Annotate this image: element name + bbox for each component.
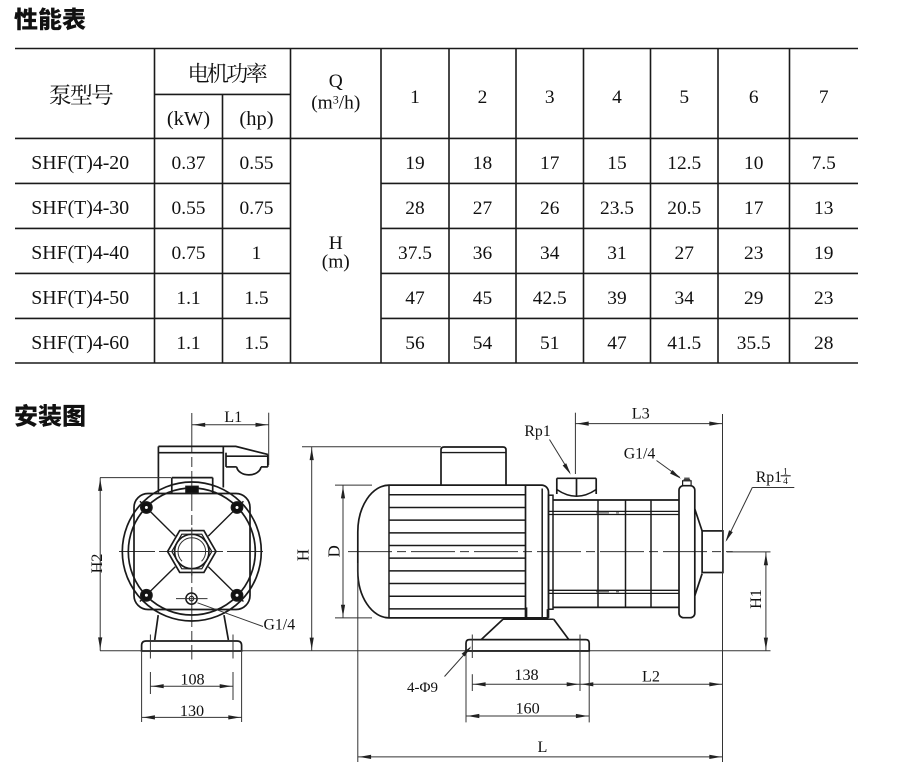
svg-text:SHF(T)4-40: SHF(T)4-40	[31, 242, 129, 264]
svg-text:1: 1	[252, 243, 262, 264]
svg-text:45: 45	[473, 288, 492, 309]
svg-text:35.5: 35.5	[737, 333, 771, 354]
svg-text:28: 28	[405, 198, 424, 219]
svg-text:19: 19	[814, 243, 833, 264]
svg-text:31: 31	[607, 243, 626, 264]
svg-text:138: 138	[514, 666, 538, 684]
svg-text:6: 6	[749, 87, 759, 108]
svg-text:108: 108	[180, 670, 204, 688]
svg-text:20.5: 20.5	[667, 198, 701, 219]
svg-text:56: 56	[405, 333, 425, 354]
svg-text:L: L	[538, 738, 548, 756]
svg-text:H1: H1	[747, 589, 765, 609]
svg-text:54: 54	[473, 333, 493, 354]
svg-text:42.5: 42.5	[533, 288, 567, 309]
svg-text:18: 18	[473, 153, 492, 174]
svg-text:H: H	[294, 549, 313, 561]
svg-text:0.75: 0.75	[240, 198, 274, 219]
svg-text:L1: L1	[224, 408, 242, 426]
svg-text:27: 27	[473, 198, 493, 219]
svg-text:19: 19	[405, 153, 424, 174]
svg-text:51: 51	[540, 333, 559, 354]
svg-text:SHF(T)4-30: SHF(T)4-30	[31, 197, 129, 219]
svg-text:23: 23	[814, 288, 833, 309]
svg-text:1.5: 1.5	[244, 333, 268, 354]
svg-text:0.55: 0.55	[240, 153, 274, 174]
svg-text:SHF(T)4-60: SHF(T)4-60	[31, 332, 129, 354]
svg-text:34: 34	[540, 243, 560, 264]
svg-text:28: 28	[814, 333, 833, 354]
svg-text:Q: Q	[329, 71, 343, 92]
svg-text:SHF(T)4-50: SHF(T)4-50	[31, 287, 129, 309]
svg-text:(kW): (kW)	[167, 108, 210, 130]
svg-text:1: 1	[410, 87, 420, 108]
svg-text:G1/4: G1/4	[264, 617, 296, 634]
svg-text:160: 160	[515, 699, 539, 717]
svg-text:39: 39	[607, 288, 626, 309]
svg-text:13: 13	[814, 198, 833, 219]
svg-text:H2: H2	[88, 554, 106, 574]
svg-text:17: 17	[540, 153, 560, 174]
svg-text:47: 47	[607, 333, 627, 354]
svg-text:29: 29	[744, 288, 763, 309]
svg-text:0.37: 0.37	[172, 153, 206, 174]
svg-text:3: 3	[545, 87, 555, 108]
svg-text:36: 36	[473, 243, 493, 264]
svg-text:SHF(T)4-20: SHF(T)4-20	[31, 152, 129, 174]
svg-text:Rp1: Rp1	[756, 469, 782, 486]
svg-text:12.5: 12.5	[667, 153, 701, 174]
svg-text:2: 2	[478, 87, 488, 108]
svg-text:D: D	[325, 545, 344, 557]
svg-text:L2: L2	[642, 668, 660, 686]
svg-text:4-Φ9: 4-Φ9	[407, 680, 438, 696]
svg-text:26: 26	[540, 198, 560, 219]
svg-text:47: 47	[405, 288, 425, 309]
svg-text:37.5: 37.5	[398, 243, 432, 264]
svg-text:1.1: 1.1	[176, 333, 200, 354]
svg-text:130: 130	[180, 702, 204, 720]
svg-text:7: 7	[819, 87, 829, 108]
svg-text:27: 27	[675, 243, 695, 264]
svg-text:23: 23	[744, 243, 763, 264]
svg-text:5: 5	[679, 87, 689, 108]
svg-text:1.5: 1.5	[244, 288, 268, 309]
svg-text:4: 4	[783, 477, 788, 487]
svg-text:15: 15	[607, 153, 626, 174]
svg-text:4: 4	[612, 87, 622, 108]
svg-text:0.55: 0.55	[172, 198, 206, 219]
svg-text:17: 17	[744, 198, 764, 219]
svg-text:Rp1: Rp1	[524, 423, 550, 440]
svg-text:1.1: 1.1	[176, 288, 200, 309]
svg-text:34: 34	[675, 288, 695, 309]
svg-text:10: 10	[744, 153, 763, 174]
svg-text:41.5: 41.5	[667, 333, 701, 354]
svg-text:L3: L3	[632, 405, 650, 423]
svg-text:(m): (m)	[322, 252, 350, 273]
svg-text:(hp): (hp)	[239, 108, 273, 130]
svg-text:23.5: 23.5	[600, 198, 634, 219]
svg-text:7.5: 7.5	[812, 153, 836, 174]
svg-text:0.75: 0.75	[172, 243, 206, 264]
svg-text:G1/4: G1/4	[624, 445, 656, 462]
